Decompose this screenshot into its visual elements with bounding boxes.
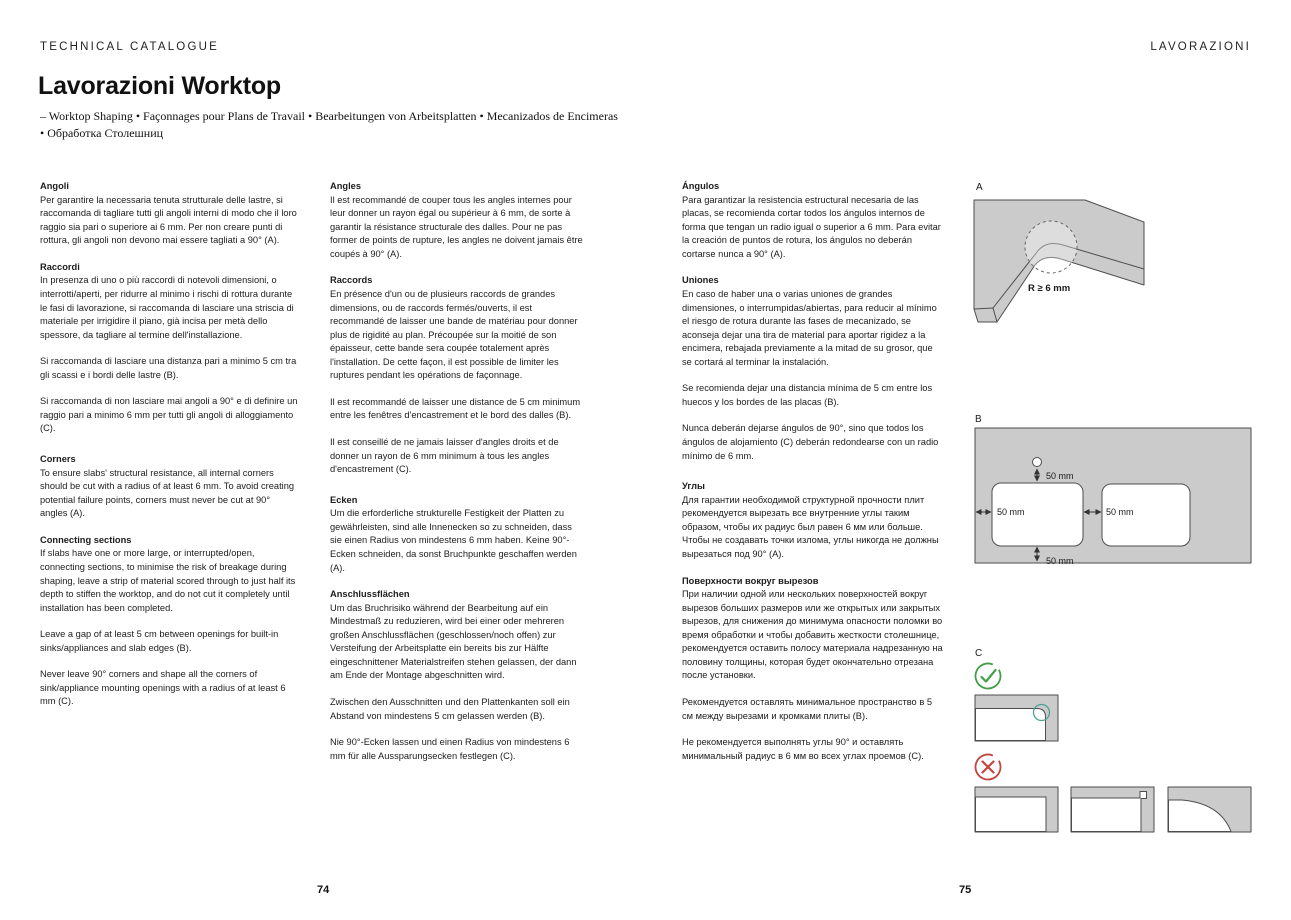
text-paragraph: Um das Bruchrisiko während der Bearbeitu…	[330, 602, 584, 683]
incorrect-corner-example-large-curve	[1168, 787, 1251, 832]
text-paragraph: Рекомендуется оставлять минимальное прос…	[682, 696, 944, 723]
text-paragraph: Il est conseillé de ne jamais laisser d'…	[330, 436, 584, 477]
page-number-left: 74	[317, 884, 329, 896]
diagram-b-label: B	[975, 414, 982, 425]
diagram-c-corner-examples: C	[955, 630, 1275, 860]
text-block: AnschlussflächenUm das Bruchrisiko währe…	[330, 588, 584, 763]
text-block: Connecting sectionsIf slabs have one or …	[40, 534, 300, 709]
text-paragraph: Leave a gap of at least 5 cm between ope…	[40, 628, 300, 655]
text-block: RaccordiIn presenza di uno o più raccord…	[40, 261, 300, 436]
text-paragraph: To ensure slabs' structural resistance, …	[40, 467, 300, 521]
text-block: УглыДля гарантии необходимой структурной…	[682, 480, 944, 561]
block-heading: Angoli	[40, 180, 300, 194]
text-paragraph: Para garantizar la resistencia estructur…	[682, 194, 944, 262]
subtitle-line-1: – Worktop Shaping • Façonnages pour Plan…	[40, 108, 618, 125]
text-paragraph: Never leave 90° corners and shape all th…	[40, 668, 300, 709]
text-block: ÁngulosPara garantizar la resistencia es…	[682, 180, 944, 261]
diagram-b-cutout-spacing: B 50 mm 50 mm 50 mm 50 mm	[955, 405, 1275, 585]
block-heading: Corners	[40, 453, 300, 467]
text-paragraph: Zwischen den Ausschnitten und den Platte…	[330, 696, 584, 723]
text-paragraph: Il est recommandé de laisser une distanc…	[330, 396, 584, 423]
text-column-italian-english: AngoliPer garantire la necessaria tenuta…	[40, 180, 300, 722]
block-heading: Anschlussflächen	[330, 588, 584, 602]
incorrect-corner-example-notched	[1071, 787, 1154, 832]
page-number-right: 75	[959, 884, 971, 896]
incorrect-corner-example-sharp	[975, 787, 1058, 832]
text-paragraph: Si raccomanda di lasciare una distanza p…	[40, 355, 300, 382]
text-block: AnglesIl est recommandé de couper tous l…	[330, 180, 584, 261]
block-heading: Raccordi	[40, 261, 300, 275]
text-paragraph: Не рекомендуется выполнять углы 90° и ос…	[682, 736, 944, 763]
dim-label-bottom: 50 mm	[1046, 556, 1074, 566]
text-block: AngoliPer garantire la necessaria tenuta…	[40, 180, 300, 248]
page-title: Lavorazioni Worktop	[38, 72, 281, 101]
text-paragraph: Se recomienda dejar una distancia mínima…	[682, 382, 944, 409]
cross-circle-stamp-icon	[971, 750, 1005, 784]
subtitle: – Worktop Shaping • Façonnages pour Plan…	[40, 108, 618, 143]
block-heading: Углы	[682, 480, 944, 494]
text-paragraph: If slabs have one or more large, or inte…	[40, 547, 300, 615]
text-block: Поверхности вокруг вырезовПри наличии од…	[682, 575, 944, 764]
check-circle-stamp-icon	[971, 659, 1005, 693]
diagram-a-corner-radius: A R ≥ 6 mm	[960, 170, 1260, 360]
text-column-french-german: AnglesIl est recommandé de couper tous l…	[330, 180, 584, 776]
faucet-hole	[1033, 458, 1042, 467]
text-paragraph: En présence d'un ou de plusieurs raccord…	[330, 288, 584, 383]
text-paragraph: Для гарантии необходимой структурной про…	[682, 494, 944, 562]
text-paragraph: En caso de haber una o varias uniones de…	[682, 288, 944, 369]
text-block: EckenUm die erforderliche strukturelle F…	[330, 494, 584, 575]
diagram-c-label: C	[975, 648, 982, 659]
dim-label-left: 50 mm	[997, 507, 1025, 517]
text-paragraph: Per garantire la necessaria tenuta strut…	[40, 194, 300, 248]
dim-label-middle: 50 mm	[1106, 507, 1134, 517]
correct-corner-example	[975, 695, 1058, 741]
text-block: RaccordsEn présence d'un ou de plusieurs…	[330, 274, 584, 476]
text-paragraph: Nie 90°-Ecken lassen und einen Radius vo…	[330, 736, 584, 763]
text-paragraph: Um die erforderliche strukturelle Festig…	[330, 507, 584, 575]
text-paragraph: Il est recommandé de couper tous les ang…	[330, 194, 584, 262]
radius-highlight-dashed-circle	[1025, 221, 1077, 273]
block-heading: Ecken	[330, 494, 584, 508]
text-paragraph: При наличии одной или нескольких поверхн…	[682, 588, 944, 683]
text-paragraph: Nunca deberán dejarse ángulos de 90°, si…	[682, 422, 944, 463]
text-block: UnionesEn caso de haber una o varias uni…	[682, 274, 944, 463]
block-heading: Ángulos	[682, 180, 944, 194]
catalogue-spread: TECHNICAL CATALOGUE LAVORAZIONI Lavorazi…	[0, 0, 1291, 920]
text-paragraph: In presenza di uno o più raccordi di not…	[40, 274, 300, 342]
text-column-spanish-russian: ÁngulosPara garantizar la resistencia es…	[682, 180, 944, 776]
header-right: LAVORAZIONI	[1150, 41, 1251, 53]
block-heading: Connecting sections	[40, 534, 300, 548]
diagram-a-label: A	[976, 182, 983, 193]
block-heading: Raccords	[330, 274, 584, 288]
dim-label-top: 50 mm	[1046, 471, 1074, 481]
radius-dimension-label: R ≥ 6 mm	[1028, 283, 1070, 294]
block-heading: Поверхности вокруг вырезов	[682, 575, 944, 589]
text-block: CornersTo ensure slabs' structural resis…	[40, 453, 300, 521]
text-paragraph: Si raccomanda di non lasciare mai angoli…	[40, 395, 300, 436]
block-heading: Uniones	[682, 274, 944, 288]
header-left: TECHNICAL CATALOGUE	[40, 41, 219, 53]
subtitle-line-2: • Обработка Столешниц	[40, 125, 618, 142]
block-heading: Angles	[330, 180, 584, 194]
